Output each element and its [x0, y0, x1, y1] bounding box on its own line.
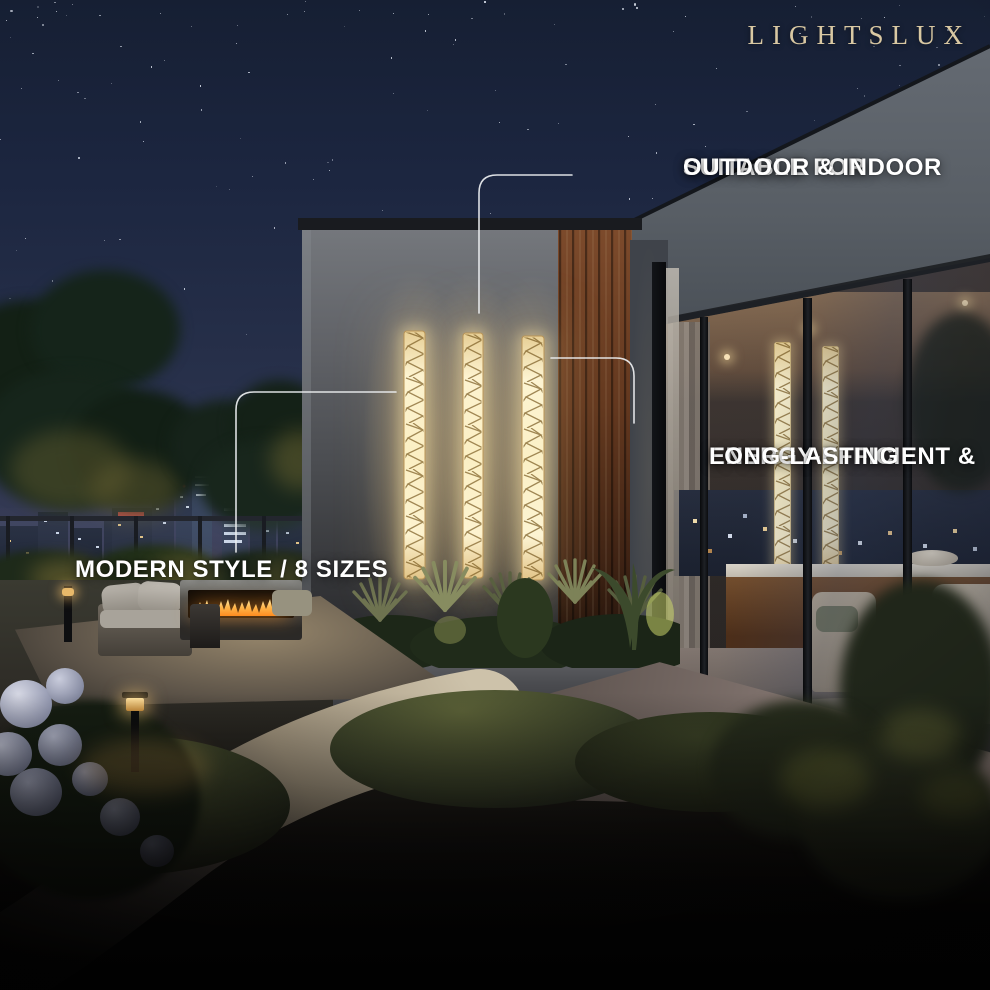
callout-line-suitability	[479, 175, 572, 313]
callout-lines	[0, 0, 990, 990]
callout-line-efficiency	[551, 358, 634, 423]
promo-image: LIGHTSLUX SUITABLE FOR OUTDOOR & INDOOR …	[0, 0, 990, 990]
brand-logo: LIGHTSLUX	[748, 20, 971, 51]
annotation-suitability-line2: OUTDOOR & INDOOR	[683, 151, 942, 185]
annotation-style-sizes: MODERN STYLE / 8 SIZES	[75, 553, 388, 587]
callout-line-style	[236, 392, 396, 552]
annotation-efficiency-line2: LONG-LASTING	[709, 440, 899, 474]
